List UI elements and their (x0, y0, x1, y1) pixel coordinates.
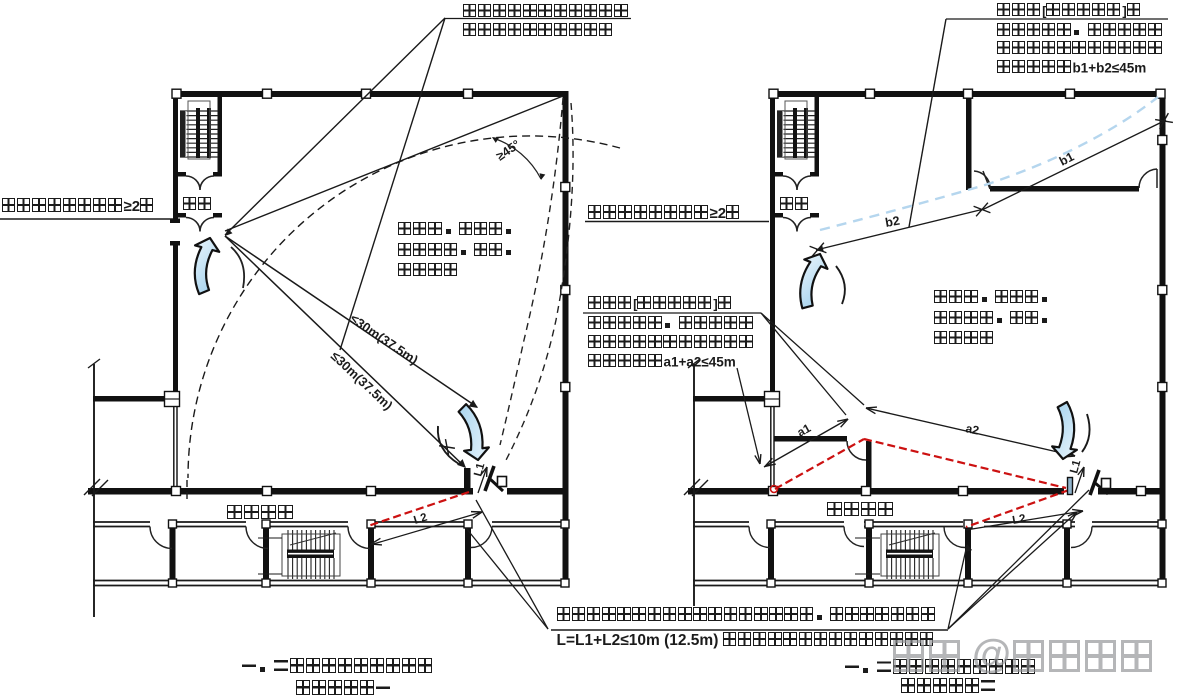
svg-text:b2: b2 (884, 214, 901, 230)
